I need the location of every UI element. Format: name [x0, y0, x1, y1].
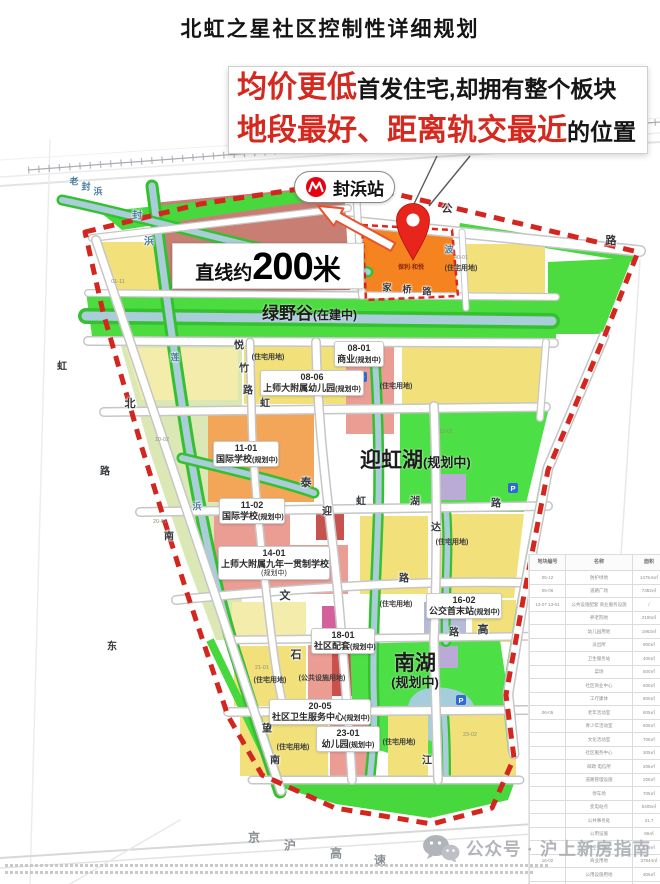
- legend-cell-code: [530, 733, 566, 747]
- area-name: 南湖: [381, 652, 449, 676]
- planning-map-page: P P P P 北虹之星社区控制性详细规划 均价更低 首发住宅,却拥有整个板块 …: [0, 0, 660, 884]
- callout-black-text: 首发住宅,却拥有整个板块: [357, 68, 616, 110]
- parcel-label: 18-01社区配套(规划中): [311, 628, 375, 654]
- road-name-char: 家: [382, 281, 391, 294]
- parcel-label-code: 08-06: [263, 372, 361, 383]
- legend-cell-name: 养老院地: [566, 611, 633, 625]
- legend-row: 变电站点5405㎡: [530, 800, 660, 814]
- legend-row: 社区商业中心600㎡: [530, 679, 660, 693]
- road-name-char: 南: [270, 752, 280, 767]
- parcel-label-status: (规划中): [252, 457, 278, 464]
- legend-cell-area: 305㎡: [633, 746, 660, 760]
- legend-cell-name: 派出所: [566, 638, 633, 652]
- legend-row: 养老院地2100㎡: [530, 611, 660, 625]
- legend-cell-area: 505㎡: [633, 719, 660, 733]
- callout-line-2: 地段最好、距离轨交最近 的位置: [237, 110, 639, 153]
- legend-cell-code: [530, 868, 566, 882]
- land-use-label: (住宅用地): [436, 537, 469, 547]
- road-name-char: 路: [100, 463, 110, 478]
- legend-cell-area: 705㎡: [633, 787, 660, 801]
- road-name-char: 东: [107, 638, 117, 653]
- parcel-label-code: 23-01: [319, 728, 377, 739]
- road-name-char: 路: [399, 570, 409, 585]
- legend-cell-code: [530, 773, 566, 787]
- parcel-label-code: 11-02: [222, 500, 282, 511]
- water-name-char: 封: [81, 180, 90, 193]
- legend-cell-name: 邮政 电信所: [566, 760, 633, 774]
- legend-cell-code: [530, 625, 566, 639]
- water-name-char: 莲: [170, 351, 179, 364]
- legend-cell-area: 900㎡: [633, 638, 660, 652]
- road-name-char: 虹: [260, 395, 270, 410]
- callout-black-text: 的位置: [567, 111, 636, 153]
- legend-cell-code: [530, 760, 566, 774]
- legend-cell-code: [530, 652, 566, 666]
- land-use-label: (住宅用地): [277, 742, 310, 752]
- road-name-char: 北: [125, 395, 136, 411]
- legend-header-cell: 面积: [633, 555, 660, 571]
- legend-row: 道路管理设施205㎡: [530, 773, 660, 787]
- water-name-char: 浜: [93, 185, 102, 198]
- road-name-char: 路: [422, 285, 431, 298]
- legend-cell-name: 公共设施配套 商业服务设施: [566, 598, 633, 612]
- legend-cell-area: 805㎡: [633, 706, 660, 720]
- road-name-char: 竹: [239, 360, 249, 375]
- legend-row: 05-12防护绿地1479.6㎡: [530, 571, 660, 585]
- legend-row: 公共事务处41.7: [530, 814, 660, 828]
- station-name: 封浜站: [333, 175, 384, 200]
- distance-value: 200: [252, 247, 312, 287]
- metro-logo-icon: [305, 176, 327, 198]
- legend-cell-area: 205㎡: [633, 760, 660, 774]
- area-label-south-lake: 南湖 (规划中): [381, 652, 449, 691]
- legend-cell-code: [530, 665, 566, 679]
- fine-print-line: [5, 871, 535, 874]
- parcel-code: 23-02: [463, 732, 477, 738]
- legend-header-row: 地块编号名称面积: [530, 555, 660, 571]
- area-status: (规划中): [423, 452, 471, 471]
- parcel-label: 11-02国际学校(规划中): [219, 498, 285, 524]
- parcel-label-status: (规划中): [349, 742, 375, 749]
- parcel-code: 20-01: [153, 519, 167, 525]
- legend-row: 公用设施用地305㎡: [530, 868, 660, 882]
- legend-cell-name: 社区商业中心: [566, 679, 633, 693]
- road-name-char: 文: [280, 587, 291, 603]
- parcel-label: 14-01上师大附属九年一贯制学校(规划中): [218, 546, 330, 580]
- parcel-label-status: (规划中): [335, 386, 361, 393]
- watermark-text: 公众号 · 沪上新房指南: [466, 836, 651, 861]
- parcel-label-name: 公交首末站(规划中): [429, 606, 499, 617]
- road-name-char: 路: [449, 624, 459, 639]
- land-use-label: (住宅用地): [383, 737, 416, 747]
- legend-row: 菜场500㎡: [530, 665, 660, 679]
- road-name-char: 江: [422, 752, 432, 767]
- legend-header-cell: 名称: [566, 555, 633, 571]
- water-name-char: 波: [444, 243, 453, 256]
- road-name-char: 南: [164, 528, 174, 543]
- expressway-name-char: 高: [330, 845, 342, 862]
- svg-text:P: P: [510, 484, 515, 493]
- area-status: (在建中): [313, 306, 357, 323]
- legend-row: 青少年活动室505㎡: [530, 719, 660, 733]
- parcel-label-name: 幼儿园(规划中): [319, 739, 377, 750]
- legend-cell-area: 5405㎡: [633, 800, 660, 814]
- parcel-label-code: 20-05: [272, 701, 368, 712]
- legend-row: 文化活动室705㎡: [530, 733, 660, 747]
- legend-header-cell: 地块编号: [530, 555, 566, 571]
- road-name-char: 路: [491, 495, 501, 510]
- parcel-label: 08-01商业(规划中): [334, 341, 384, 367]
- parcel-label-status: (规划中): [355, 357, 381, 364]
- road-name-char: 桥: [402, 283, 411, 296]
- road-name-char: 虹: [356, 493, 366, 508]
- legend-cell-area: 705㎡: [633, 733, 660, 747]
- legend-row: 停车场705㎡: [530, 787, 660, 801]
- area-name: 绿野谷: [262, 299, 313, 324]
- legend-cell-area: 1963㎡: [633, 625, 660, 639]
- legend-cell-area: 500㎡: [633, 665, 660, 679]
- legend-cell-name: 公共事务处: [566, 814, 633, 828]
- legend-cell-area: 205㎡: [633, 773, 660, 787]
- legend-row: 卫生服务站400㎡: [530, 652, 660, 666]
- legend-row: 社区服务中心305㎡: [530, 746, 660, 760]
- parcel-label-name: 社区卫生服务中心(规划中): [272, 712, 368, 723]
- page-title: 北虹之星社区控制性详细规划: [0, 13, 660, 43]
- legend-cell-name: 工疗康体: [566, 692, 633, 706]
- legend-row: 派出所900㎡: [530, 638, 660, 652]
- water-name-char: 老: [69, 175, 78, 188]
- distance-callout: 直线约 200 米: [172, 243, 364, 289]
- road-name-char: 高: [478, 621, 489, 637]
- road-name-char: 石: [291, 646, 302, 662]
- legend-cell-name: 幼儿园用地: [566, 625, 633, 639]
- road-name-char: 虹: [57, 358, 67, 373]
- water-name-char: 封: [132, 207, 142, 222]
- callout-line-1: 均价更低 首发住宅,却拥有整个板块: [237, 67, 639, 110]
- parcel-label-name: 国际学校(规划中): [222, 511, 282, 522]
- parcel-code: 40-01: [454, 255, 468, 261]
- road-name-char: 湖: [410, 493, 420, 508]
- water-name-char: 浜: [144, 233, 154, 248]
- parcel-code: 12-01: [439, 429, 453, 435]
- parcel-label-code: 08-01: [337, 343, 381, 354]
- legend-cell-code: 05-12: [530, 571, 566, 585]
- area-status: (规划中): [381, 676, 449, 691]
- legend-cell-code: [530, 611, 566, 625]
- parcel-label-name: 国际学校(规划中): [216, 454, 276, 465]
- parcel-label-name: 上师大附属九年一贯制学校: [221, 559, 327, 570]
- area-label-yinghong-lake: 迎虹湖 (规划中): [360, 444, 471, 474]
- road-name-char: 泰: [301, 474, 312, 490]
- legend-cell-name: 卫生服务站: [566, 652, 633, 666]
- legend-row: 06-05老年活动室805㎡: [530, 706, 660, 720]
- parcel-label: 11-01国际学校(规划中): [213, 441, 279, 467]
- land-use-label: (住宅用地): [445, 263, 478, 273]
- expressway-name-char: 京: [248, 829, 260, 846]
- legend-cell-name: 公用设施用地: [566, 868, 633, 882]
- legend-cell-name: 停车场: [566, 787, 633, 801]
- legend-cell-area: 41.7: [633, 814, 660, 828]
- parcel-label-name: 上师大附属幼儿园(规划中): [263, 383, 361, 394]
- area-name: 迎虹湖: [360, 444, 423, 474]
- fine-print-line: [5, 864, 550, 867]
- legend-cell-code: [530, 638, 566, 652]
- legend-cell-name: 社区服务中心: [566, 746, 633, 760]
- legend-cell-area: 400㎡: [633, 652, 660, 666]
- parcel-label-code: 11-01: [216, 443, 276, 454]
- parcel-code: 01-11: [111, 279, 125, 285]
- legend-row: 工疗康体800㎡: [530, 692, 660, 706]
- legend-row: 邮政 电信所205㎡: [530, 760, 660, 774]
- callout-red-text: 地段最好、距离轨交最近: [237, 110, 567, 152]
- svg-text:P: P: [458, 696, 463, 705]
- water-name-char: 浜: [192, 500, 201, 513]
- road-name-char: 迎: [322, 503, 332, 518]
- expressway-name-char: 沪: [284, 837, 296, 854]
- watermark: 公众号 · 沪上新房指南: [422, 834, 651, 862]
- legend-cell-name: 青少年活动室: [566, 719, 633, 733]
- parcel-label: 23-01幼儿园(规划中): [316, 726, 380, 752]
- legend-cell-area: /: [633, 598, 660, 612]
- highlight-parcel-text: 保利·和悦: [366, 262, 456, 271]
- legend-cell-area: 7352㎡: [633, 584, 660, 598]
- parcel-label-name: 社区配套(规划中): [314, 641, 372, 652]
- road-name-char: 路: [243, 382, 253, 397]
- metro-station-badge: 封浜站: [294, 171, 395, 203]
- legend-cell-name: 老年活动室: [566, 706, 633, 720]
- legend-cell-code: 13-07 13-01: [530, 598, 566, 612]
- parcel-label-name: 商业(规划中): [337, 354, 381, 365]
- area-label-green-valley: 绿野谷 (在建中): [262, 299, 357, 324]
- land-use-label: (住宅用地): [252, 352, 285, 362]
- legend-cell-code: [530, 800, 566, 814]
- parcel-label-status: (规划中): [344, 715, 370, 722]
- legend-cell-name: 道路广场: [566, 584, 633, 598]
- legend-cell-code: [530, 746, 566, 760]
- distance-prefix: 直线约: [195, 258, 252, 285]
- legend-cell-code: [530, 814, 566, 828]
- parcel-label-code: 14-01: [221, 548, 327, 559]
- land-use-label: (住宅用地): [380, 381, 413, 391]
- legend-cell-area: 600㎡: [633, 679, 660, 693]
- distance-unit: 米: [313, 248, 341, 288]
- legend-cell-name: 道路管理设施: [566, 773, 633, 787]
- road-name-char: 悦: [234, 337, 244, 352]
- parcel-label: 16-02公交首末站(规划中): [426, 593, 502, 619]
- legend-cell-name: 变电站点: [566, 800, 633, 814]
- legend-row: 幼儿园用地1963㎡: [530, 625, 660, 639]
- legend-cell-area: 1479.6㎡: [633, 571, 660, 585]
- parcel-label-status: (规划中): [350, 644, 376, 651]
- land-use-label: (住宅用地): [254, 675, 287, 685]
- legend-cell-area: 800㎡: [633, 692, 660, 706]
- parcel-label-code: 18-01: [314, 630, 372, 641]
- promo-callout: 均价更低 首发住宅,却拥有整个板块 地段最好、距离轨交最近 的位置: [228, 66, 648, 154]
- callout-red-text: 均价更低: [237, 67, 357, 109]
- legend-cell-name: 文化活动室: [566, 733, 633, 747]
- parcel-code: 21-01: [255, 665, 269, 671]
- legend-cell-code: 05-06: [530, 584, 566, 598]
- parcel-label: 20-05社区卫生服务中心(规划中): [269, 699, 371, 725]
- legend-cell-area: 2100㎡: [633, 611, 660, 625]
- legend-cell-code: [530, 692, 566, 706]
- legend-cell-code: 06-05: [530, 706, 566, 720]
- legend-cell-name: 防护绿地: [566, 571, 633, 585]
- parcel-code: 10-02: [155, 437, 169, 443]
- road-name-char: 路: [606, 232, 617, 248]
- legend-row: 13-07 13-01公共设施配套 商业服务设施/: [530, 598, 660, 612]
- parcel-label: 08-06上师大附属幼儿园(规划中): [260, 370, 364, 396]
- wechat-icon: [422, 834, 460, 862]
- legend-cell-code: [530, 787, 566, 801]
- road-name-char: 公: [442, 200, 453, 216]
- parcel-label-status: (规划中): [474, 609, 500, 616]
- parcel-label-status: (规划中): [258, 514, 284, 521]
- parcel-label-code: 16-02: [429, 595, 499, 606]
- road-name-char: 达: [431, 519, 441, 534]
- legend-row: 05-06道路广场7352㎡: [530, 584, 660, 598]
- legend-cell-area: 305㎡: [633, 868, 660, 882]
- parcel-label-status: (规划中): [221, 570, 327, 578]
- legend-cell-code: [530, 679, 566, 693]
- legend-cell-code: [530, 719, 566, 733]
- legend-cell-name: 菜场: [566, 665, 633, 679]
- land-use-label: (公共设施用地): [299, 673, 346, 683]
- land-use-label: (住宅用地): [380, 599, 413, 609]
